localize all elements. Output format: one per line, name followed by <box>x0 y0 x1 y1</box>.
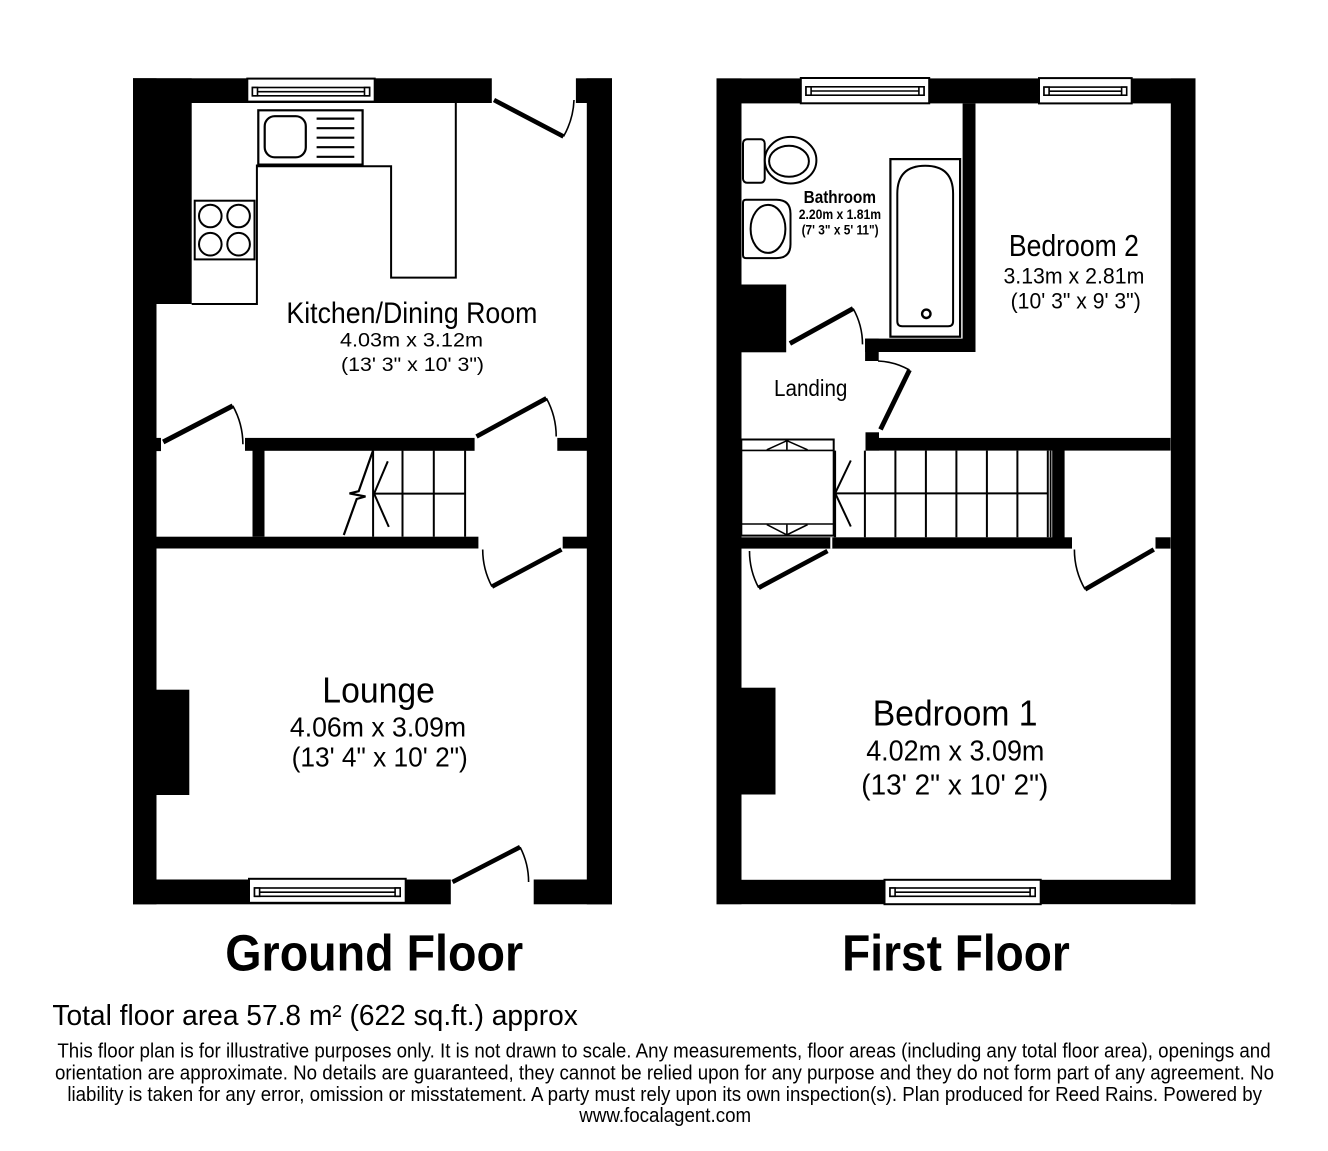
svg-text:www.focalagent.com: www.focalagent.com <box>578 1104 751 1127</box>
svg-text:(7' 3" x 5' 11"): (7' 3" x 5' 11") <box>802 223 879 239</box>
svg-text:Bedroom 1: Bedroom 1 <box>873 693 1038 734</box>
svg-text:4.06m x 3.09m: 4.06m x 3.09m <box>290 712 466 743</box>
svg-text:Bathroom: Bathroom <box>804 187 876 207</box>
svg-text:Ground Floor: Ground Floor <box>225 924 523 981</box>
svg-text:(13' 4" x 10' 2"): (13' 4" x 10' 2") <box>292 742 468 773</box>
svg-text:4.03m x 3.12m: 4.03m x 3.12m <box>340 329 483 351</box>
svg-text:liability is taken for any err: liability is taken for any error, omissi… <box>67 1083 1262 1106</box>
svg-text:Lounge: Lounge <box>322 671 435 711</box>
svg-text:(13' 2" x 10' 2"): (13' 2" x 10' 2") <box>861 770 1048 802</box>
svg-text:(13' 3" x 10' 3"): (13' 3" x 10' 3") <box>341 354 484 376</box>
svg-text:Total floor area 57.8 m² (622: Total floor area 57.8 m² (622 sq.ft.) ap… <box>52 1000 578 1032</box>
svg-text:Landing: Landing <box>774 375 847 401</box>
svg-text:Bedroom 2: Bedroom 2 <box>1009 230 1139 263</box>
svg-text:4.02m x 3.09m: 4.02m x 3.09m <box>866 735 1044 767</box>
svg-text:orientation are approximate. N: orientation are approximate. No details … <box>55 1061 1274 1084</box>
svg-text:Kitchen/Dining Room: Kitchen/Dining Room <box>286 297 537 330</box>
svg-text:First Floor: First Floor <box>842 924 1070 981</box>
svg-text:3.13m x 2.81m: 3.13m x 2.81m <box>1003 263 1144 288</box>
svg-text:This floor plan is for illustr: This floor plan is for illustrative purp… <box>57 1040 1270 1063</box>
svg-text:2.20m x 1.81m: 2.20m x 1.81m <box>799 207 881 223</box>
svg-text:(10' 3" x 9' 3"): (10' 3" x 9' 3") <box>1011 289 1141 314</box>
